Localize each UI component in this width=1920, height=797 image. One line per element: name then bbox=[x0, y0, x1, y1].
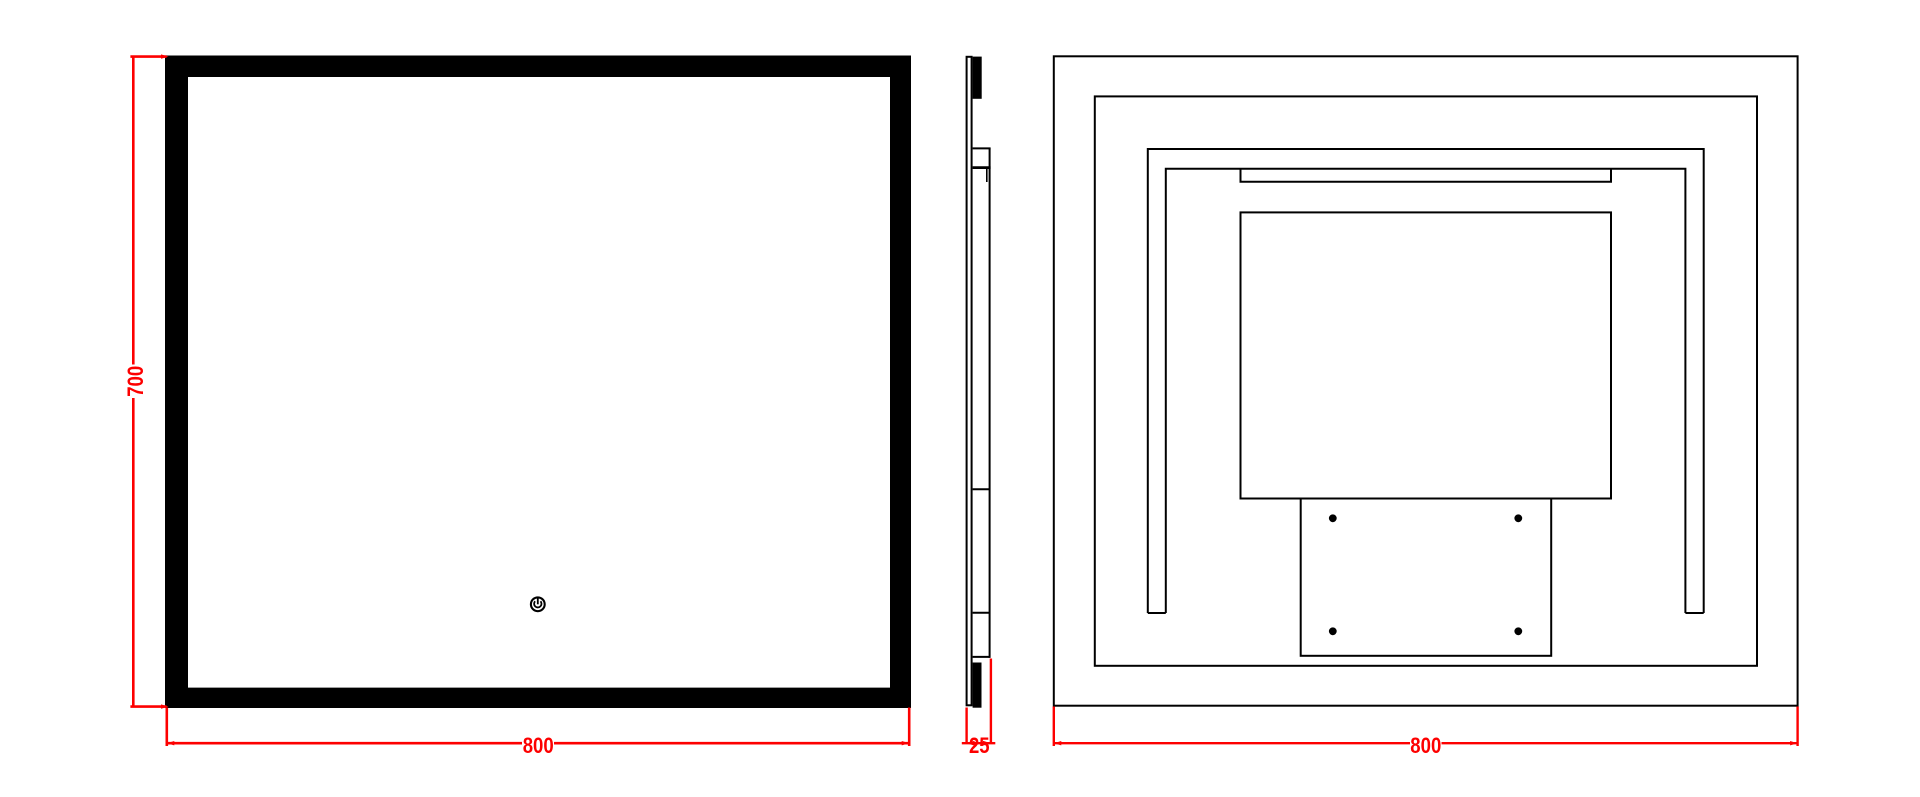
svg-text:25: 25 bbox=[969, 733, 990, 758]
svg-text:800: 800 bbox=[523, 733, 554, 758]
svg-text:700: 700 bbox=[123, 366, 148, 397]
svg-text:800: 800 bbox=[1410, 733, 1441, 758]
